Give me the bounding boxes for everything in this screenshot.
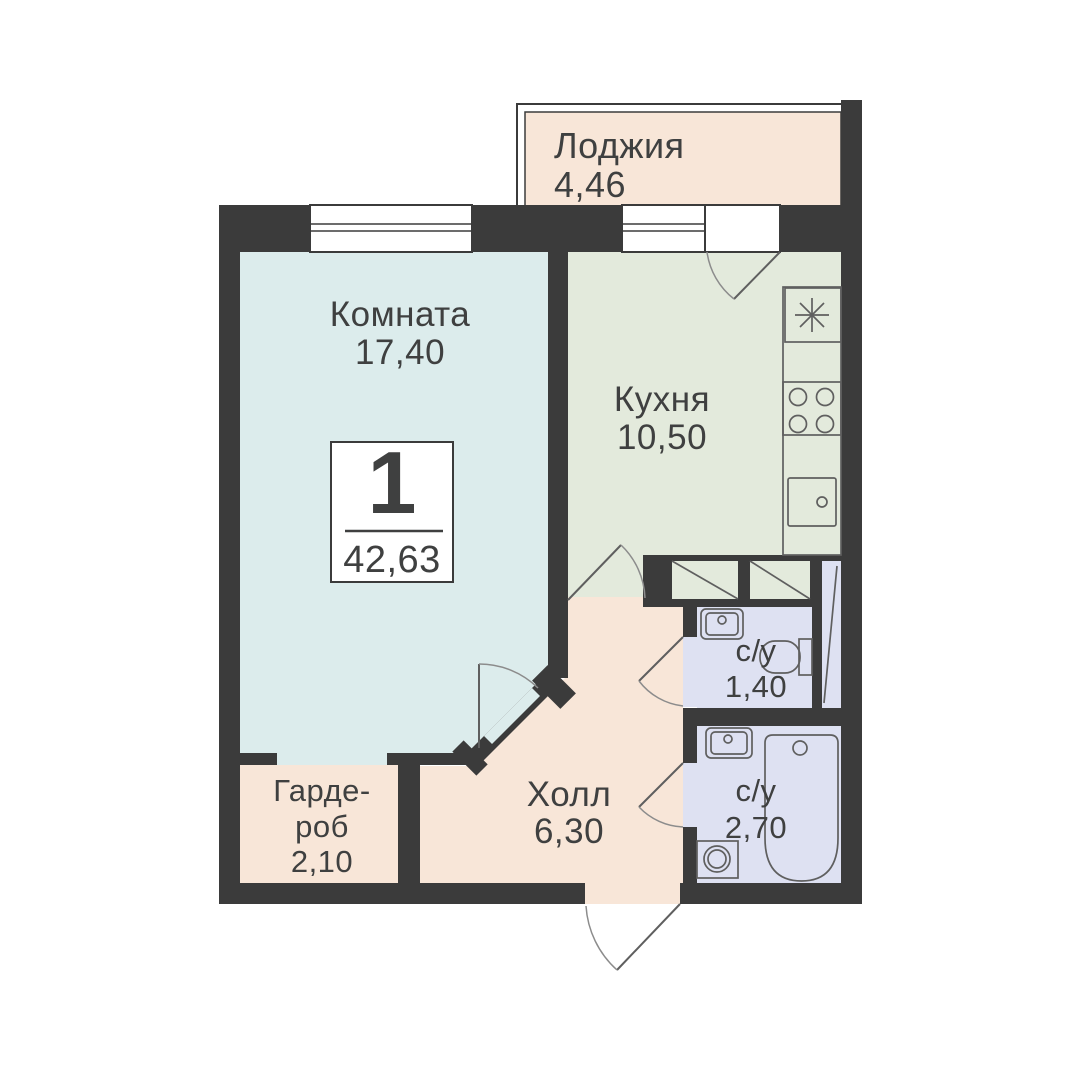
wall-left <box>219 205 240 904</box>
kitchen-window <box>622 205 705 252</box>
bathroom-large-label: с/у <box>735 773 776 808</box>
floor-plan: 1 42,63 Лоджия 4,46 Комната 17,40 Кухня … <box>0 0 1080 1080</box>
loggia-area: 4,46 <box>554 164 626 205</box>
floor-plan-canvas: 1 42,63 Лоджия 4,46 Комната 17,40 Кухня … <box>0 0 1080 1080</box>
kitchen-opening-floor <box>568 597 643 607</box>
living-room-window <box>310 205 472 252</box>
fridge-snowflake-icon <box>795 298 829 332</box>
bathroom-large-opening-floor <box>683 763 697 827</box>
apartment-badge: 1 42,63 <box>331 433 453 582</box>
entrance-door-arc <box>586 906 617 970</box>
kitchen-area: 10,50 <box>617 418 707 457</box>
wall-segment <box>683 827 697 883</box>
total-area: 42,63 <box>343 539 441 581</box>
wall-segment <box>812 607 822 708</box>
wall-segment <box>683 708 841 726</box>
loggia-label: Лоджия <box>554 125 685 166</box>
living-room-label: Комната <box>330 295 471 334</box>
wall-segment <box>683 597 697 637</box>
wall-segment <box>240 753 277 765</box>
kitchen-floor-lower <box>568 557 643 597</box>
entrance-door-leaf <box>617 904 680 970</box>
wardrobe-label-line1: Гарде- <box>273 773 370 808</box>
balcony-door-panel <box>705 205 780 252</box>
hall-label: Холл <box>527 775 612 814</box>
wall-bottom <box>219 883 862 904</box>
wardrobe-area: 2,10 <box>291 844 353 879</box>
bathroom-small-opening-floor <box>683 637 697 707</box>
wardrobe-opening-floor <box>277 753 387 765</box>
wall-segment <box>683 726 697 763</box>
entrance-opening-floor <box>585 883 680 904</box>
bathroom-large-area: 2,70 <box>725 810 787 845</box>
wall-segment <box>398 753 420 883</box>
wall-segment <box>822 555 841 561</box>
hall-area: 6,30 <box>534 812 604 851</box>
rooms-count: 1 <box>368 433 417 532</box>
kitchen-label: Кухня <box>614 380 710 419</box>
wall-right <box>841 100 862 904</box>
bathroom-small-area: 1,40 <box>725 669 787 704</box>
wall-segment <box>548 252 568 678</box>
wardrobe-label-line2: роб <box>295 809 349 844</box>
bathroom-small-label: с/у <box>735 633 776 668</box>
living-room-area: 17,40 <box>355 333 445 372</box>
